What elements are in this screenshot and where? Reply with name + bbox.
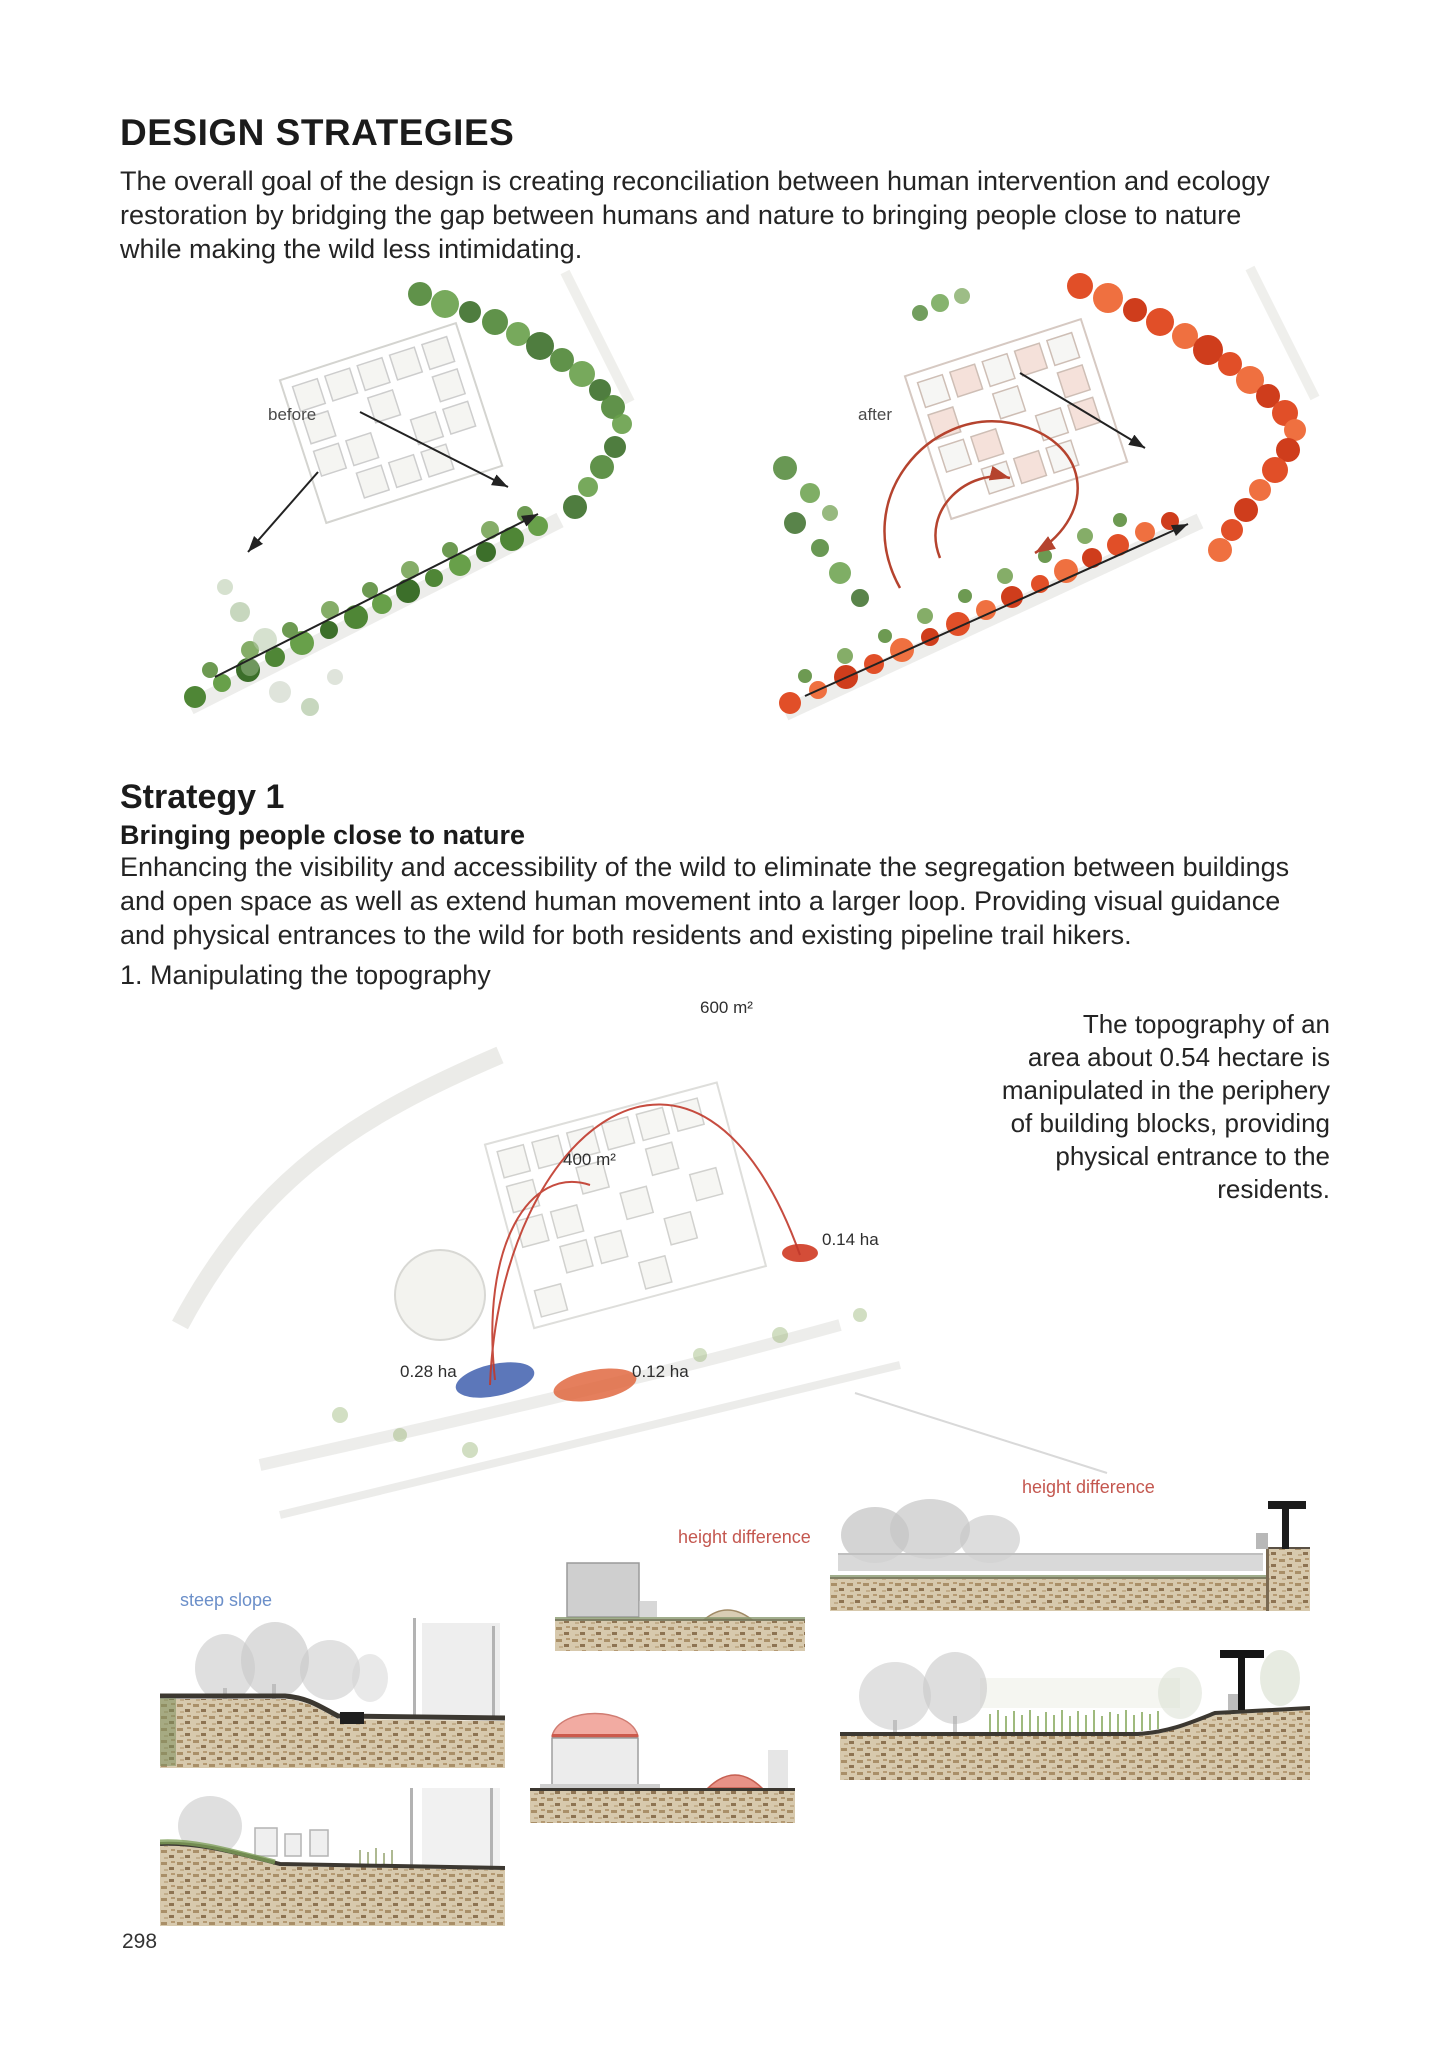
page-number: 298 <box>122 1930 157 1954</box>
section-meadow-marker <box>840 1638 1310 1786</box>
before-site-plan <box>110 262 650 742</box>
building-blocks <box>905 319 1127 519</box>
connector-line <box>845 1385 1115 1480</box>
strategy-subheading: Bringing people close to nature <box>120 820 525 851</box>
strategy-heading: Strategy 1 <box>120 778 284 817</box>
ha-028-label: 0.28 ha <box>400 1362 457 1382</box>
steep-slope-label: steep slope <box>180 1590 272 1611</box>
strategy-body: Enhancing the visibility and accessibili… <box>120 850 1360 952</box>
pipeline-marker-icon <box>1220 1650 1264 1710</box>
section-height-difference-mid <box>555 1553 805 1658</box>
area-400-label: 400 m² <box>563 1150 616 1170</box>
before-label: before <box>268 405 316 425</box>
strategy-step1: 1. Manipulating the topography <box>120 960 491 991</box>
height-difference-label-right: height difference <box>1022 1477 1155 1498</box>
portfolio-page: DESIGN STRATEGIES The overall goal of th… <box>0 0 1443 2048</box>
intro-paragraph: The overall goal of the design is creati… <box>120 164 1360 266</box>
section-dome-building <box>530 1688 795 1828</box>
page-title: DESIGN STRATEGIES <box>120 112 514 154</box>
pipeline-marker-icon <box>1268 1501 1306 1549</box>
after-label: after <box>858 405 892 425</box>
height-difference-label-mid: height difference <box>678 1527 811 1548</box>
corridor-trees-red <box>779 512 1179 714</box>
area-600-label: 600 m² <box>700 998 753 1018</box>
ha-014-label: 0.14 ha <box>822 1230 879 1250</box>
ha-012-label: 0.12 ha <box>632 1362 689 1382</box>
after-site-plan <box>690 258 1340 758</box>
section-steep-slope-2 <box>160 1788 505 1933</box>
topography-diagram <box>140 995 1040 1575</box>
topography-caption: The topography of an area about 0.54 hec… <box>1000 1008 1330 1206</box>
section-steep-slope-1 <box>160 1618 505 1778</box>
section-height-difference-right <box>830 1497 1310 1622</box>
